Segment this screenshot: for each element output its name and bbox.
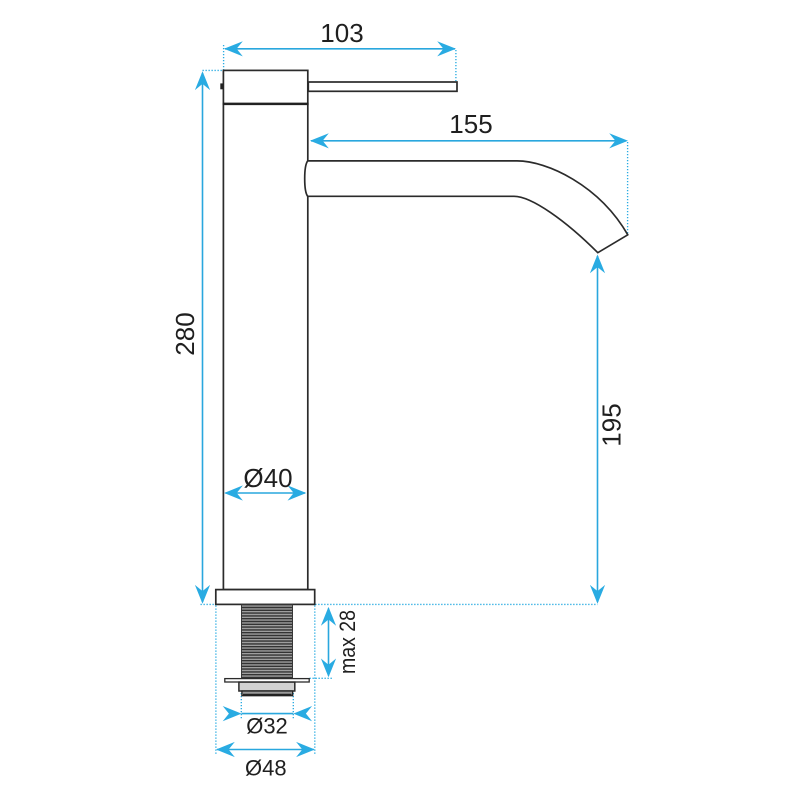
svg-text:195: 195 — [597, 403, 627, 446]
svg-text:max 28: max 28 — [335, 610, 360, 674]
svg-text:Ø48: Ø48 — [245, 756, 287, 781]
svg-text:280: 280 — [170, 312, 200, 355]
svg-text:Ø40: Ø40 — [243, 463, 292, 493]
svg-text:155: 155 — [449, 109, 492, 139]
svg-text:Ø32: Ø32 — [246, 714, 288, 739]
svg-text:103: 103 — [320, 18, 363, 48]
